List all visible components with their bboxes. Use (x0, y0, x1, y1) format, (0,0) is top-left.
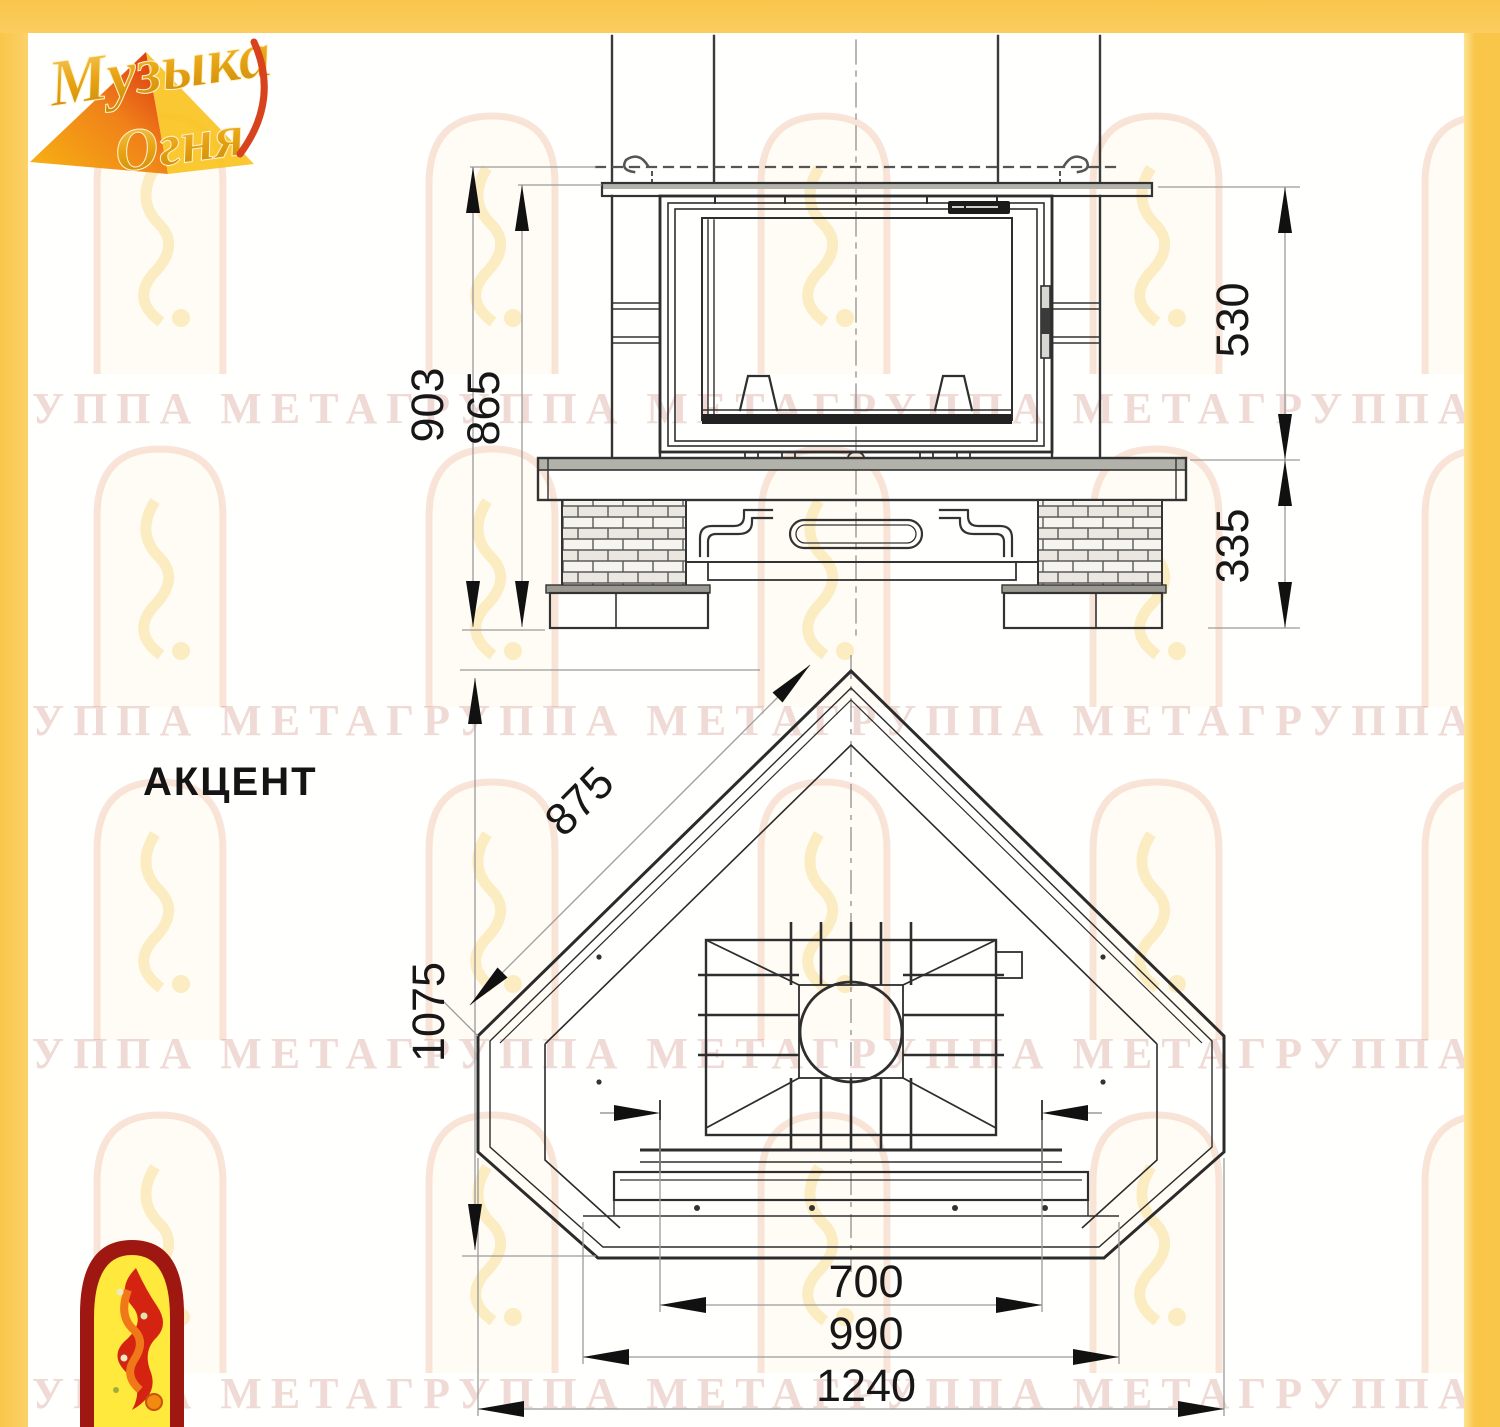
plinth-right (1002, 585, 1166, 628)
catalog-page: ГРУППА МЕТАГРУППА МЕТАГРУППА МЕТАГРУППА … (0, 0, 1500, 1427)
andiron-left (740, 376, 777, 410)
mantel-shelf (602, 183, 1152, 196)
dim-label-700: 700 (828, 1256, 903, 1307)
door-sill (702, 414, 1012, 424)
top-view (478, 655, 1224, 1272)
brick-pillar-left (562, 500, 686, 593)
front-view (538, 36, 1186, 640)
plinth-left (546, 585, 710, 628)
frame-band-left (0, 33, 28, 1427)
decor-panel (686, 500, 1038, 580)
front-view-dimensions: 903 865 530 335 (402, 167, 1300, 630)
bench-slab (538, 458, 1186, 500)
dim-label-903: 903 (402, 367, 453, 442)
top-view-dimensions: 875 1075 700 990 1240 (403, 665, 1224, 1417)
dim-label-1240: 1240 (816, 1360, 916, 1411)
andiron-right (935, 376, 972, 410)
sun-dot (146, 1394, 162, 1410)
panel-scroll-left (700, 510, 772, 556)
frame-band-right (1464, 33, 1500, 1427)
dim-label-875: 875 (534, 756, 623, 845)
firebox-ribs (698, 922, 1004, 1150)
firebox-plan (698, 922, 1022, 1150)
dim-label-865: 865 (458, 370, 509, 445)
panel-scroll-right (940, 510, 1012, 556)
door-glass (702, 218, 1012, 420)
brand-logo: Музыка Огня (18, 14, 328, 199)
dim-label-530: 530 (1207, 282, 1258, 357)
dim-label-1075: 1075 (403, 962, 454, 1062)
logo-word-1: Музыка (43, 17, 275, 121)
technical-drawing: 903 865 530 335 (0, 0, 1500, 1427)
brick-pillar-right (1038, 500, 1162, 593)
corner-arch-logo (80, 1240, 184, 1427)
dim-label-990: 990 (828, 1308, 903, 1359)
dim-label-335: 335 (1207, 508, 1258, 583)
